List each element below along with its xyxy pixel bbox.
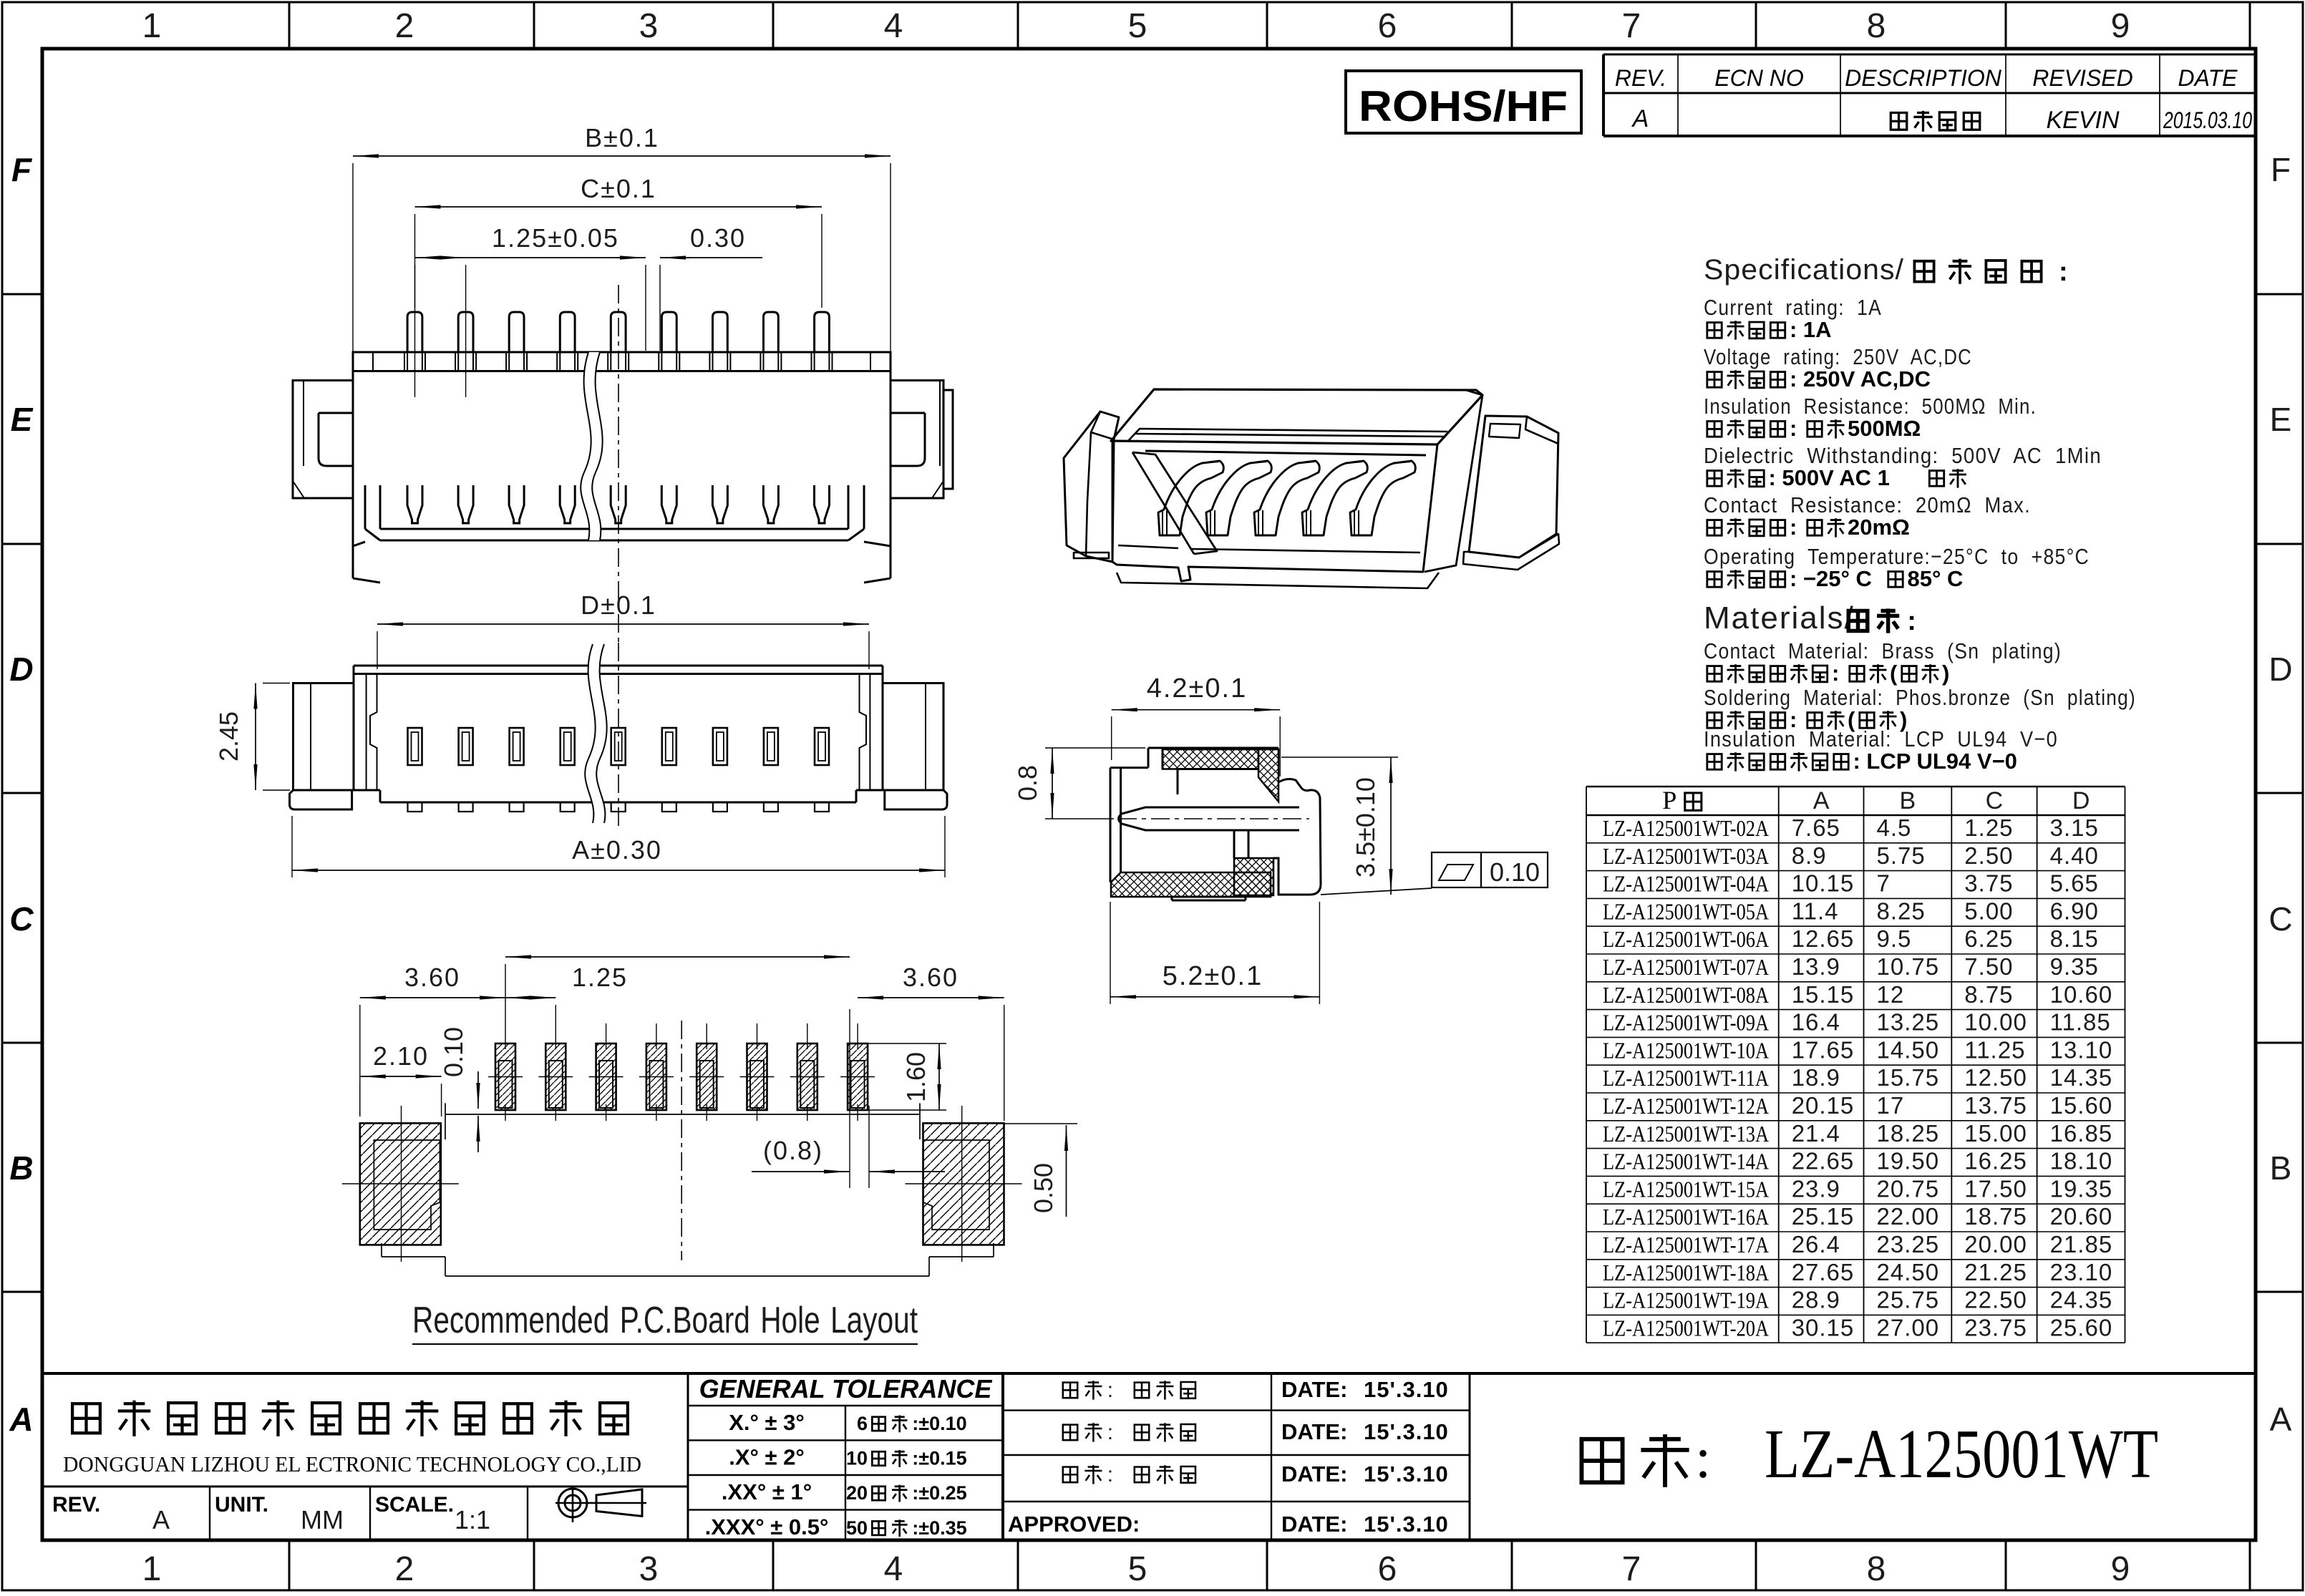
svg-text:20mΩ: 20mΩ <box>1848 515 1910 540</box>
svg-text:4.2±0.1: 4.2±0.1 <box>1147 673 1248 704</box>
svg-text:APPROVED:: APPROVED: <box>1008 1512 1140 1537</box>
svg-text:3: 3 <box>639 1550 659 1588</box>
svg-text:85° C: 85° C <box>1908 566 1964 591</box>
svg-text:7: 7 <box>1622 1550 1641 1588</box>
svg-text:18.10: 18.10 <box>2050 1148 2113 1174</box>
svg-text:25.60: 25.60 <box>2050 1314 2113 1340</box>
svg-text:19.35: 19.35 <box>2050 1175 2113 1202</box>
svg-text:25.15: 25.15 <box>1792 1203 1855 1230</box>
svg-text:10.15: 10.15 <box>1792 870 1855 897</box>
svg-text:LZ-A125001WT-13A: LZ-A125001WT-13A <box>1603 1121 1769 1147</box>
svg-text:P: P <box>1662 786 1676 814</box>
svg-text:8.15: 8.15 <box>2050 925 2099 952</box>
svg-text:ECN NO: ECN NO <box>1714 65 1803 91</box>
svg-text:23.9: 23.9 <box>1792 1175 1840 1202</box>
svg-text:26.4: 26.4 <box>1792 1231 1840 1257</box>
svg-text:0.10: 0.10 <box>1490 857 1540 887</box>
svg-text:2: 2 <box>395 7 414 45</box>
svg-text:2015.03.10: 2015.03.10 <box>2163 107 2252 133</box>
svg-text:21.25: 21.25 <box>1964 1259 2027 1285</box>
svg-text:27.00: 27.00 <box>1877 1314 1940 1340</box>
svg-text:1: 1 <box>142 7 162 45</box>
svg-text:F: F <box>2271 151 2291 188</box>
svg-text:3.5±0.10: 3.5±0.10 <box>1351 777 1380 877</box>
svg-text:10.00: 10.00 <box>1964 1009 2027 1036</box>
svg-text:24.35: 24.35 <box>2050 1287 2113 1313</box>
svg-text:LZ-A125001WT-12A: LZ-A125001WT-12A <box>1603 1093 1769 1119</box>
svg-text::±0.10: :±0.10 <box>912 1413 966 1434</box>
svg-text:D: D <box>9 651 33 688</box>
svg-text:LZ-A125001WT-07A: LZ-A125001WT-07A <box>1603 954 1769 980</box>
svg-text:: 1A: : 1A <box>1790 317 1832 342</box>
svg-text:C±0.1: C±0.1 <box>581 174 656 203</box>
svg-text::: : <box>1790 416 1797 441</box>
svg-text:4.40: 4.40 <box>2050 842 2099 869</box>
svg-text:19.50: 19.50 <box>1877 1148 1940 1174</box>
svg-text:23.75: 23.75 <box>1964 1314 2027 1340</box>
svg-text:15'.3.10: 15'.3.10 <box>1364 1512 1449 1537</box>
svg-text:C: C <box>1986 787 2004 814</box>
svg-text:DATE:: DATE: <box>1281 1512 1347 1537</box>
svg-text:(0.8): (0.8) <box>763 1136 823 1165</box>
svg-text:23.25: 23.25 <box>1877 1231 1940 1257</box>
svg-text:20.60: 20.60 <box>2050 1203 2113 1230</box>
svg-text:DATE:: DATE: <box>1281 1461 1347 1486</box>
svg-text:5: 5 <box>1128 1550 1147 1588</box>
svg-text::: : <box>1107 1463 1113 1486</box>
svg-text:50: 50 <box>846 1517 868 1539</box>
svg-text:Operating Temperature:−25°C: Operating Temperature:−25°C to +85°C <box>1704 544 2090 569</box>
svg-text:LZ-A125001WT: LZ-A125001WT <box>1765 1416 2158 1493</box>
svg-text:11.25: 11.25 <box>1964 1036 2025 1063</box>
svg-text::±0.25: :±0.25 <box>912 1482 966 1504</box>
svg-text:UNIT.: UNIT. <box>215 1493 268 1517</box>
svg-text:27.65: 27.65 <box>1792 1259 1855 1285</box>
svg-text:2.10: 2.10 <box>373 1041 429 1071</box>
svg-text:5.65: 5.65 <box>2050 870 2099 897</box>
svg-text:.X° ± 2°: .X° ± 2° <box>729 1445 805 1470</box>
svg-text:REV.: REV. <box>1615 65 1666 91</box>
svg-text:17.65: 17.65 <box>1792 1036 1855 1063</box>
svg-text:1.25±0.05: 1.25±0.05 <box>492 223 619 253</box>
svg-text:22.65: 22.65 <box>1792 1148 1855 1174</box>
svg-text:1: 1 <box>142 1550 162 1588</box>
svg-text:ROHS/HF: ROHS/HF <box>1359 82 1568 130</box>
svg-text:B: B <box>2270 1149 2292 1187</box>
svg-text:16.25: 16.25 <box>1964 1148 2027 1174</box>
svg-text:13.10: 13.10 <box>2050 1036 2113 1063</box>
svg-text:8: 8 <box>1867 1550 1886 1588</box>
svg-text:22.50: 22.50 <box>1964 1287 2027 1313</box>
svg-text:LZ-A125001WT-17A: LZ-A125001WT-17A <box>1603 1232 1769 1257</box>
svg-text:8.75: 8.75 <box>1964 981 2013 1008</box>
svg-text:8.9: 8.9 <box>1792 842 1827 869</box>
svg-text:21.4: 21.4 <box>1792 1120 1840 1147</box>
svg-text:5.00: 5.00 <box>1964 897 2013 924</box>
svg-text:15'.3.10: 15'.3.10 <box>1364 1377 1449 1402</box>
svg-text:0.8: 0.8 <box>1013 765 1042 801</box>
svg-text:A: A <box>152 1505 170 1534</box>
svg-text:: 250V AC,DC: : 250V AC,DC <box>1790 366 1931 391</box>
svg-text:8: 8 <box>1867 7 1886 45</box>
svg-text:E: E <box>2270 401 2292 438</box>
svg-text:Insulation Material: LCP: Insulation Material: LCP UL94 V−0 <box>1704 726 2058 751</box>
svg-text:30.15: 30.15 <box>1792 1314 1855 1340</box>
svg-text:24.50: 24.50 <box>1877 1259 1940 1285</box>
svg-text:9: 9 <box>2111 1550 2130 1588</box>
svg-text:10.60: 10.60 <box>2050 981 2113 1008</box>
svg-text:DATE: DATE <box>2178 65 2238 91</box>
svg-text:15.15: 15.15 <box>1792 981 1855 1008</box>
svg-text:E: E <box>11 401 34 438</box>
svg-text:LZ-A125001WT-02A: LZ-A125001WT-02A <box>1603 815 1769 841</box>
svg-text:DATE:: DATE: <box>1281 1419 1347 1444</box>
svg-text:6: 6 <box>1378 7 1397 45</box>
svg-text:15'.3.10: 15'.3.10 <box>1364 1461 1449 1486</box>
svg-text:23.10: 23.10 <box>2050 1259 2113 1285</box>
svg-text:0.50: 0.50 <box>1029 1163 1058 1213</box>
svg-text:LZ-A125001WT-03A: LZ-A125001WT-03A <box>1603 843 1769 869</box>
svg-text:REV.: REV. <box>52 1493 100 1517</box>
svg-text:0.10: 0.10 <box>439 1027 468 1077</box>
svg-text:A: A <box>9 1401 33 1438</box>
svg-text:LZ-A125001WT-05A: LZ-A125001WT-05A <box>1603 898 1769 924</box>
svg-text:500MΩ: 500MΩ <box>1848 416 1921 441</box>
svg-text:8.25: 8.25 <box>1877 897 1926 924</box>
svg-text:Specifications/: Specifications/ <box>1704 254 1904 286</box>
svg-text::: : <box>1790 515 1797 540</box>
svg-text:12: 12 <box>1877 981 1905 1008</box>
svg-text:Recommended P.C.Board Hole L: Recommended P.C.Board Hole Layout <box>412 1300 918 1341</box>
svg-text:16.4: 16.4 <box>1792 1009 1840 1036</box>
svg-text:Voltage rating: 250V AC,DC: Voltage rating: 250V AC,DC <box>1704 344 1972 369</box>
svg-text:9: 9 <box>2111 7 2130 45</box>
svg-text:.XX° ± 1°: .XX° ± 1° <box>722 1479 812 1504</box>
svg-text:6.25: 6.25 <box>1964 925 2013 952</box>
svg-text:3.15: 3.15 <box>2050 814 2099 841</box>
svg-text:(: ( <box>1890 661 1898 686</box>
svg-text:10: 10 <box>846 1448 868 1469</box>
svg-text:REVISED: REVISED <box>2032 65 2132 91</box>
svg-text::±0.15: :±0.15 <box>912 1448 966 1469</box>
svg-text:X.° ± 3°: X.° ± 3° <box>729 1410 805 1435</box>
svg-text::±0.35: :±0.35 <box>912 1517 966 1539</box>
svg-text:7: 7 <box>1622 7 1641 45</box>
svg-text:MM: MM <box>301 1505 344 1534</box>
svg-text:18.25: 18.25 <box>1877 1120 1940 1147</box>
svg-text:1.25: 1.25 <box>1964 814 2013 841</box>
svg-text:Insulation Resistance: 500MΩ: Insulation Resistance: 500MΩ Min. <box>1704 394 2037 419</box>
svg-text:KEVIN: KEVIN <box>2046 107 2119 134</box>
svg-text:GENERAL TOLERANCE: GENERAL TOLERANCE <box>699 1374 993 1403</box>
svg-text:LZ-A125001WT-04A: LZ-A125001WT-04A <box>1603 871 1769 897</box>
svg-text:0.30: 0.30 <box>690 223 746 253</box>
svg-text:D: D <box>2268 651 2292 688</box>
svg-text:20.00: 20.00 <box>1964 1231 2027 1257</box>
svg-text:16.85: 16.85 <box>2050 1120 2113 1147</box>
svg-text:1.25: 1.25 <box>572 963 628 992</box>
svg-text:4.5: 4.5 <box>1877 814 1912 841</box>
svg-text:Materials/: Materials/ <box>1704 600 1855 636</box>
svg-text:LZ-A125001WT-09A: LZ-A125001WT-09A <box>1603 1010 1769 1036</box>
svg-text:5: 5 <box>1128 7 1147 45</box>
svg-text:25.75: 25.75 <box>1877 1287 1940 1313</box>
svg-text::: : <box>1832 661 1839 686</box>
svg-text:B: B <box>9 1149 33 1187</box>
svg-text:4: 4 <box>884 1550 903 1588</box>
svg-text:15.60: 15.60 <box>2050 1092 2113 1119</box>
svg-text:3: 3 <box>639 7 659 45</box>
svg-text:22.00: 22.00 <box>1877 1203 1940 1230</box>
svg-text:LZ-A125001WT-15A: LZ-A125001WT-15A <box>1603 1176 1769 1202</box>
svg-text:1.60: 1.60 <box>901 1052 931 1102</box>
svg-text:14.35: 14.35 <box>2050 1064 2113 1091</box>
svg-text:15'.3.10: 15'.3.10 <box>1364 1419 1449 1444</box>
svg-text:5.2±0.1: 5.2±0.1 <box>1163 961 1263 991</box>
svg-text:LZ-A125001WT-06A: LZ-A125001WT-06A <box>1603 926 1769 952</box>
svg-text:LZ-A125001WT-16A: LZ-A125001WT-16A <box>1603 1204 1769 1230</box>
svg-text:: 500V AC 1: : 500V AC 1 <box>1769 465 1890 490</box>
svg-text:14.50: 14.50 <box>1877 1036 1940 1063</box>
svg-text:6.90: 6.90 <box>2050 897 2099 924</box>
svg-text:): ) <box>1942 661 1949 686</box>
svg-text:4: 4 <box>884 7 903 45</box>
svg-text:15.00: 15.00 <box>1964 1120 2027 1147</box>
svg-text::: : <box>1107 1421 1113 1444</box>
svg-text:13.75: 13.75 <box>1964 1092 2027 1119</box>
svg-text:7: 7 <box>1877 870 1891 897</box>
svg-text:13.25: 13.25 <box>1877 1009 1940 1036</box>
svg-text:13.9: 13.9 <box>1792 953 1840 980</box>
svg-text:18.9: 18.9 <box>1792 1064 1840 1091</box>
svg-text:F: F <box>11 151 33 188</box>
svg-text:A: A <box>2270 1401 2292 1438</box>
svg-text:C: C <box>2268 900 2292 938</box>
svg-text:C: C <box>9 900 34 938</box>
svg-text:3.75: 3.75 <box>1964 870 2013 897</box>
svg-text:2.50: 2.50 <box>1964 842 2013 869</box>
svg-text:D: D <box>2072 787 2090 814</box>
svg-text:9.5: 9.5 <box>1877 925 1912 952</box>
svg-text:: −25° C: : −25° C <box>1790 566 1872 591</box>
svg-text:LZ-A125001WT-19A: LZ-A125001WT-19A <box>1603 1288 1769 1313</box>
svg-text:18.75: 18.75 <box>1964 1203 2027 1230</box>
svg-text:A: A <box>1631 105 1649 132</box>
svg-text:11.4: 11.4 <box>1792 897 1839 924</box>
svg-text:15.75: 15.75 <box>1877 1064 1940 1091</box>
svg-text:17.50: 17.50 <box>1964 1175 2027 1202</box>
svg-text:B±0.1: B±0.1 <box>585 123 659 152</box>
svg-text:28.9: 28.9 <box>1792 1287 1840 1313</box>
svg-text:9.35: 9.35 <box>2050 953 2099 980</box>
svg-text:B: B <box>1900 787 1916 814</box>
svg-text:20: 20 <box>846 1482 868 1504</box>
svg-text:20.75: 20.75 <box>1877 1175 1940 1202</box>
svg-text:SCALE.: SCALE. <box>375 1493 454 1517</box>
svg-text:A: A <box>1813 787 1830 814</box>
svg-text:DESCRIPTION: DESCRIPTION <box>1845 65 2002 91</box>
svg-text:6: 6 <box>1378 1550 1397 1588</box>
svg-text:2.45: 2.45 <box>214 711 243 761</box>
svg-text:11.85: 11.85 <box>2050 1009 2111 1036</box>
svg-text:Current rating: 1A: Current rating: 1A <box>1704 295 1882 320</box>
svg-text:21.85: 21.85 <box>2050 1231 2113 1257</box>
svg-text::: : <box>2059 257 2068 287</box>
svg-text:3.60: 3.60 <box>903 963 959 992</box>
svg-text::: : <box>1107 1378 1113 1402</box>
svg-text:.XXX° ± 0.5°: .XXX° ± 0.5° <box>705 1514 829 1539</box>
svg-text:12.50: 12.50 <box>1964 1064 2027 1091</box>
svg-text:6: 6 <box>857 1413 868 1434</box>
svg-text:LZ-A125001WT-08A: LZ-A125001WT-08A <box>1603 982 1769 1008</box>
svg-text:5.75: 5.75 <box>1877 842 1926 869</box>
svg-text:D±0.1: D±0.1 <box>581 590 656 620</box>
svg-text:7.50: 7.50 <box>1964 953 2013 980</box>
svg-text:Dielectric Withstanding: 5: Dielectric Withstanding: 500V AC 1Min <box>1704 443 2102 468</box>
svg-text:1:1: 1:1 <box>455 1505 490 1534</box>
svg-text:20.15: 20.15 <box>1792 1092 1855 1119</box>
svg-text:Soldering Material: Phos.bro: Soldering Material: Phos.bronze (Sn plat… <box>1704 685 2136 710</box>
svg-text:Contact Material: Brass (Sn: Contact Material: Brass (Sn plating) <box>1704 638 2062 663</box>
svg-text:7.65: 7.65 <box>1792 814 1840 841</box>
svg-text:LZ-A125001WT-11A: LZ-A125001WT-11A <box>1603 1065 1769 1091</box>
svg-text:12.65: 12.65 <box>1792 925 1855 952</box>
svg-text:2: 2 <box>395 1550 414 1588</box>
svg-text:DONGGUAN LIZHOU EL ECTRONIC TE: DONGGUAN LIZHOU EL ECTRONIC TECHNOLOGY C… <box>63 1451 641 1476</box>
svg-text::: : <box>1907 606 1916 636</box>
svg-text:17: 17 <box>1877 1092 1905 1119</box>
svg-text:3.60: 3.60 <box>404 963 460 992</box>
svg-text:10.75: 10.75 <box>1877 953 1940 980</box>
svg-text:LZ-A125001WT-18A: LZ-A125001WT-18A <box>1603 1260 1769 1285</box>
svg-text::: : <box>1695 1427 1711 1490</box>
svg-text:DATE:: DATE: <box>1281 1377 1347 1402</box>
svg-text:Contact Resistance: 20mΩ: Contact Resistance: 20mΩ Max. <box>1704 492 2031 517</box>
svg-text:LZ-A125001WT-14A: LZ-A125001WT-14A <box>1603 1149 1769 1174</box>
svg-text:LZ-A125001WT-20A: LZ-A125001WT-20A <box>1603 1315 1769 1340</box>
svg-text:: LCP UL94 V−0: : LCP UL94 V−0 <box>1853 749 2017 774</box>
svg-text:A±0.30: A±0.30 <box>572 835 662 865</box>
svg-text:LZ-A125001WT-10A: LZ-A125001WT-10A <box>1603 1037 1769 1063</box>
